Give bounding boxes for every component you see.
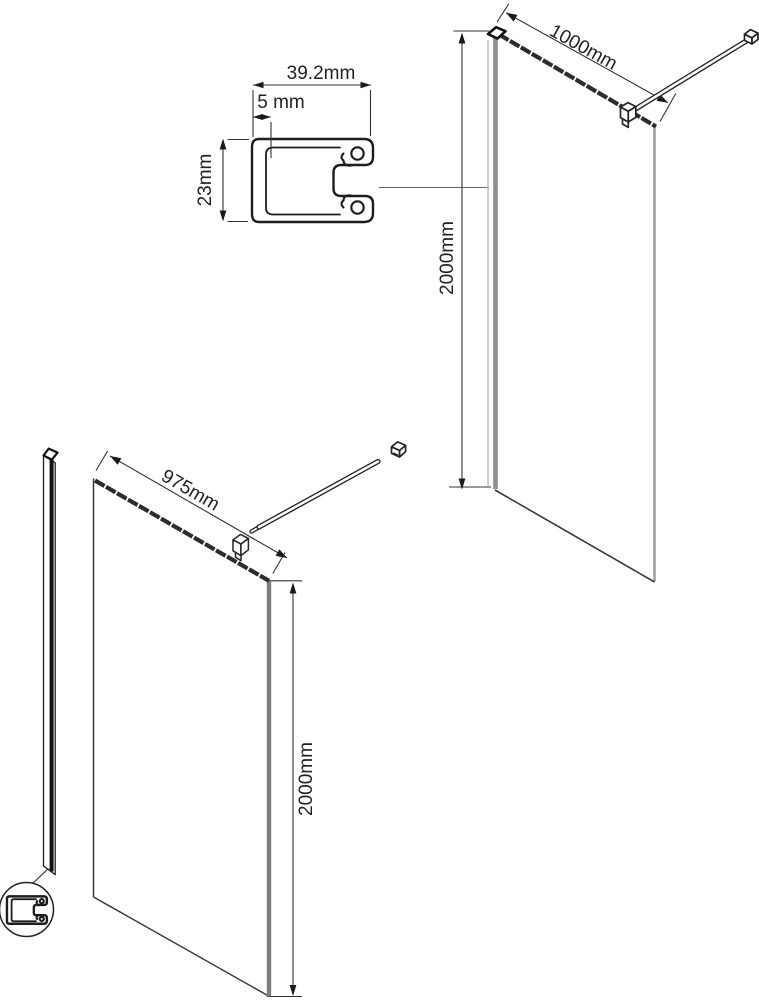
dim-line-1000 xyxy=(506,13,668,103)
assembled-glass-panel xyxy=(488,27,758,582)
profile-top-hook xyxy=(351,147,363,159)
wall-bracket xyxy=(392,442,406,457)
wall-profile-cross-section xyxy=(252,139,373,222)
wall-bracket xyxy=(745,30,759,44)
glass-clamp xyxy=(233,534,248,560)
assembled-panel-dimensions xyxy=(449,4,676,490)
technical-drawing-canvas: 39.2mm 5 mm 23mm 1000mm 2000mm 975mm 200… xyxy=(0,0,759,1000)
glass-bottom-edge xyxy=(94,897,270,997)
profile-bottom-hook xyxy=(351,201,363,213)
exploded-assembly xyxy=(44,442,406,997)
ext-975-start xyxy=(96,451,108,471)
dim-line-975 xyxy=(110,456,287,558)
detail-leader-line xyxy=(32,869,49,885)
glass-top-edge xyxy=(95,481,269,581)
dimension-arrows xyxy=(459,13,668,490)
support-bar-core xyxy=(633,39,750,111)
drawing-linework xyxy=(0,0,759,1000)
glass-clamp xyxy=(621,103,636,128)
glass-bottom-edge xyxy=(495,490,655,582)
profile-detail-balloon xyxy=(0,869,54,937)
support-bar-core xyxy=(259,462,378,528)
